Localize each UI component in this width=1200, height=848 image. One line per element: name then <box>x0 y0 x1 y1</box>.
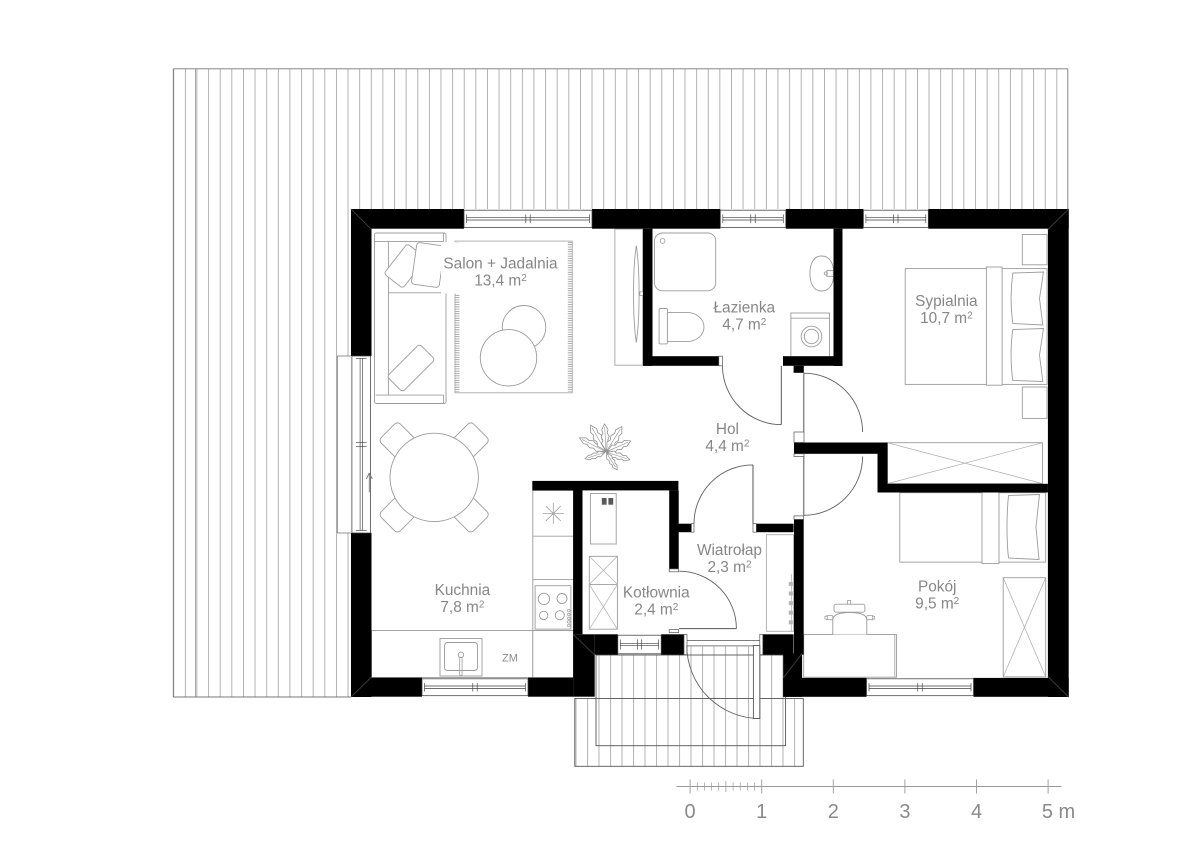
svg-text:3: 3 <box>899 801 910 823</box>
svg-text:Salon + Jadalnia: Salon + Jadalnia <box>443 255 558 272</box>
svg-text:7,8 m2: 7,8 m2 <box>440 599 485 616</box>
svg-text:4,7 m2: 4,7 m2 <box>722 317 767 334</box>
svg-text:9,5 m2: 9,5 m2 <box>915 595 960 612</box>
svg-text:5 m: 5 m <box>1042 801 1075 823</box>
svg-text:ZM: ZM <box>502 653 518 665</box>
svg-text:Sypialnia: Sypialnia <box>915 293 978 310</box>
svg-text:Kuchnia: Kuchnia <box>435 582 491 599</box>
svg-text:0: 0 <box>685 801 696 823</box>
svg-text:2,4 m2: 2,4 m2 <box>634 601 679 618</box>
svg-text:10,7 m2: 10,7 m2 <box>920 310 973 327</box>
svg-text:Wiatrołap: Wiatrołap <box>697 542 762 559</box>
svg-text:13,4 m2: 13,4 m2 <box>474 272 527 289</box>
svg-text:2,3 m2: 2,3 m2 <box>707 559 752 576</box>
svg-text:4: 4 <box>971 801 982 823</box>
svg-text:4,4 m2: 4,4 m2 <box>705 438 750 455</box>
svg-text:Kotłownia: Kotłownia <box>623 584 690 601</box>
svg-text:Hol: Hol <box>716 421 739 438</box>
svg-text:2: 2 <box>828 801 839 823</box>
svg-text:Pokój: Pokój <box>918 578 957 595</box>
svg-text:Łazienka: Łazienka <box>713 300 775 317</box>
svg-text:1: 1 <box>756 801 767 823</box>
